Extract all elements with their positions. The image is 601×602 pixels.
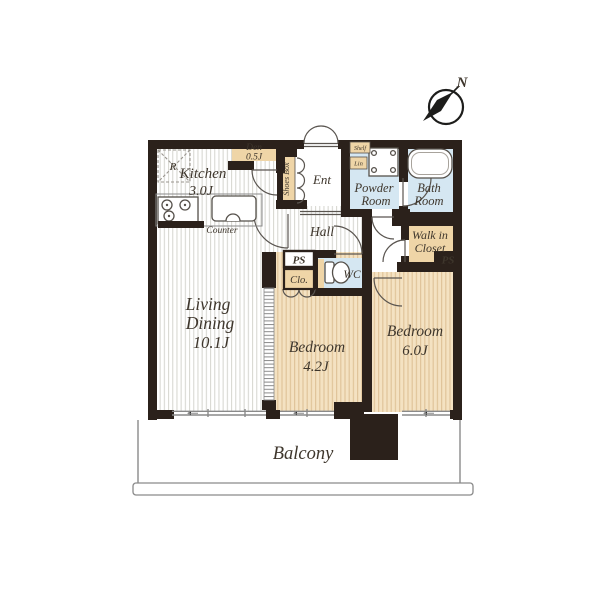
balcony-label: Balcony [273,444,334,464]
living-size-label: 10.1J [193,333,230,352]
stove-icon [158,197,198,224]
balcony-pillar [350,414,398,460]
wc-label: WC [343,269,361,281]
linen-label: Lin [353,161,363,168]
kitchen-size-label: 3.0J [188,184,214,199]
bedroom-large-size-label: 6.0J [402,343,429,359]
bath-room-label-2: Room [413,194,443,208]
bedroom-small-label: Bedroom [289,339,345,356]
powder-room-label-2: Room [360,194,390,208]
living-label-1: Living [185,294,231,314]
den-size-label: 0.5J [246,153,263,163]
bedroom-small-size-label: 4.2J [303,359,330,375]
bathtub-icon [408,149,452,178]
counter-edge [158,221,204,228]
pipe-space-right-label: PS [442,255,455,267]
walk-in-closet-label-1: Walk in [412,228,448,242]
balcony-slab [133,483,473,495]
powder-room-label-1: Powder [354,181,394,195]
sliding-door-hatch [264,288,274,400]
pipe-space-left-label: PS [293,255,306,267]
bath-room-label-1: Bath [417,181,441,195]
entrance-label: Ent [312,172,331,187]
kitchen-label: Kitchen [179,166,227,182]
counter-label: Counter [206,226,237,236]
bedroom-large-floor [372,272,453,412]
hall-label: Hall [309,224,334,239]
walk-in-closet-label-2: Closet [415,241,446,255]
compass-north-label: N [456,75,469,91]
bedroom-large-label: Bedroom [387,323,443,340]
refrigerator-label: R [169,161,177,173]
floor-plan-page: N R Kitchen 3.0J Counter Den 0.5J Shoes … [0,0,601,602]
shoes-box-label: Shoes Box [282,162,291,196]
shelf-label: Shelf [354,145,367,152]
living-label-2: Dining [185,313,235,333]
floor-plan-drawing: N R Kitchen 3.0J Counter Den 0.5J Shoes … [0,0,601,602]
den-label: Den [245,143,262,153]
closet-label: Clo. [290,275,308,286]
sink-icon [212,196,256,221]
wc-cabinet [318,259,324,288]
